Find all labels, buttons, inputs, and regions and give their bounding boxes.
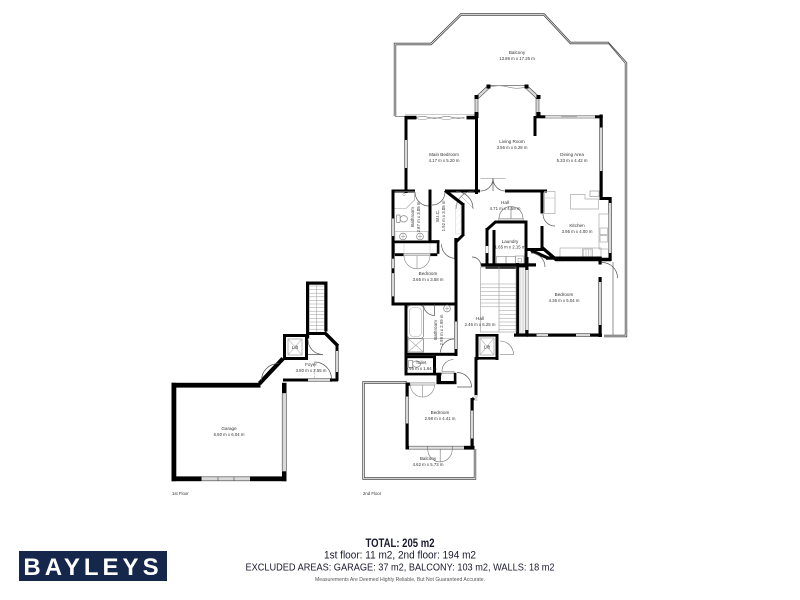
svg-text:6.50 m x 6.04 m: 6.50 m x 6.04 m [214,432,245,437]
svg-text:Laundry: Laundry [502,239,519,244]
svg-text:2nd Floor: 2nd Floor [363,491,382,496]
svg-text:2.87 m x 3.05 m: 2.87 m x 3.05 m [416,201,421,232]
svg-text:4.71 m x 4.59 m: 4.71 m x 4.59 m [490,206,521,211]
svg-text:Lift: Lift [484,345,491,350]
svg-text:4.17 m x 5.20 m: 4.17 m x 5.20 m [429,158,460,163]
svg-text:Measurements Are Deemed Highly: Measurements Are Deemed Highly Reliable,… [315,577,485,583]
svg-text:Hall: Hall [476,316,484,321]
svg-text:Garage: Garage [221,426,237,431]
svg-text:3.95 m x 4.00 m: 3.95 m x 4.00 m [562,229,593,234]
svg-text:Bedroom: Bedroom [555,292,574,297]
svg-text:1st floor: 11 m2, 2nd floor: 1: 1st floor: 11 m2, 2nd floor: 194 m2 [324,550,476,562]
svg-text:4.36 m x 5.04 m: 4.36 m x 5.04 m [549,298,580,303]
svg-text:2.46 m x 6.25 m: 2.46 m x 6.25 m [465,322,496,327]
svg-text:Toilet: Toilet [416,360,427,365]
svg-text:3.56 m x 6.28 m: 3.56 m x 6.28 m [497,145,528,150]
svg-text:EXCLUDED AREAS: GARAGE: 37 m2,: EXCLUDED AREAS: GARAGE: 37 m2, BALCONY: … [246,562,555,574]
svg-text:Lift: Lift [292,345,299,350]
svg-text:Balcony: Balcony [509,50,526,55]
svg-text:Hall: Hall [501,200,509,205]
svg-text:Bedroom: Bedroom [431,410,450,415]
svg-text:TOTAL: 205 m2: TOTAL: 205 m2 [366,538,435,550]
svg-text:1.92 m x 3.05 m: 1.92 m x 3.05 m [441,200,446,231]
svg-text:0.95 m x 1.64 m: 0.95 m x 1.64 m [406,366,437,371]
svg-text:3.65 m x 3.58 m: 3.65 m x 3.58 m [413,277,444,282]
svg-text:Bathroom: Bathroom [433,320,438,340]
svg-text:1st Floor: 1st Floor [172,491,189,496]
svg-text:Living Room: Living Room [499,139,525,144]
svg-text:2.98 m x 4.41 m: 2.98 m x 4.41 m [425,416,456,421]
svg-text:BAYLEYS: BAYLEYS [23,554,162,581]
svg-text:Bedroom: Bedroom [419,271,438,276]
svg-text:13.86 m x 17.26 m: 13.86 m x 17.26 m [499,56,535,61]
svg-text:4.62 m x 5.73 m: 4.62 m x 5.73 m [413,462,444,467]
svg-text:Main Bedroom: Main Bedroom [429,152,459,157]
svg-text:Dining Area: Dining Area [560,152,584,157]
svg-text:Foyer: Foyer [305,362,317,367]
svg-text:5.33 m x 4.42 m: 5.33 m x 4.42 m [557,158,588,163]
svg-text:2.99 m x 2.99 m: 2.99 m x 2.99 m [439,314,444,345]
svg-text:3.80 m x 2.55 m: 3.80 m x 2.55 m [296,368,327,373]
svg-text:1.65 m x 2.15 m: 1.65 m x 2.15 m [495,245,526,250]
svg-text:W.I.C.: W.I.C. [435,210,440,223]
svg-text:Kitchen: Kitchen [569,223,585,228]
svg-text:Bathroom: Bathroom [410,207,415,227]
